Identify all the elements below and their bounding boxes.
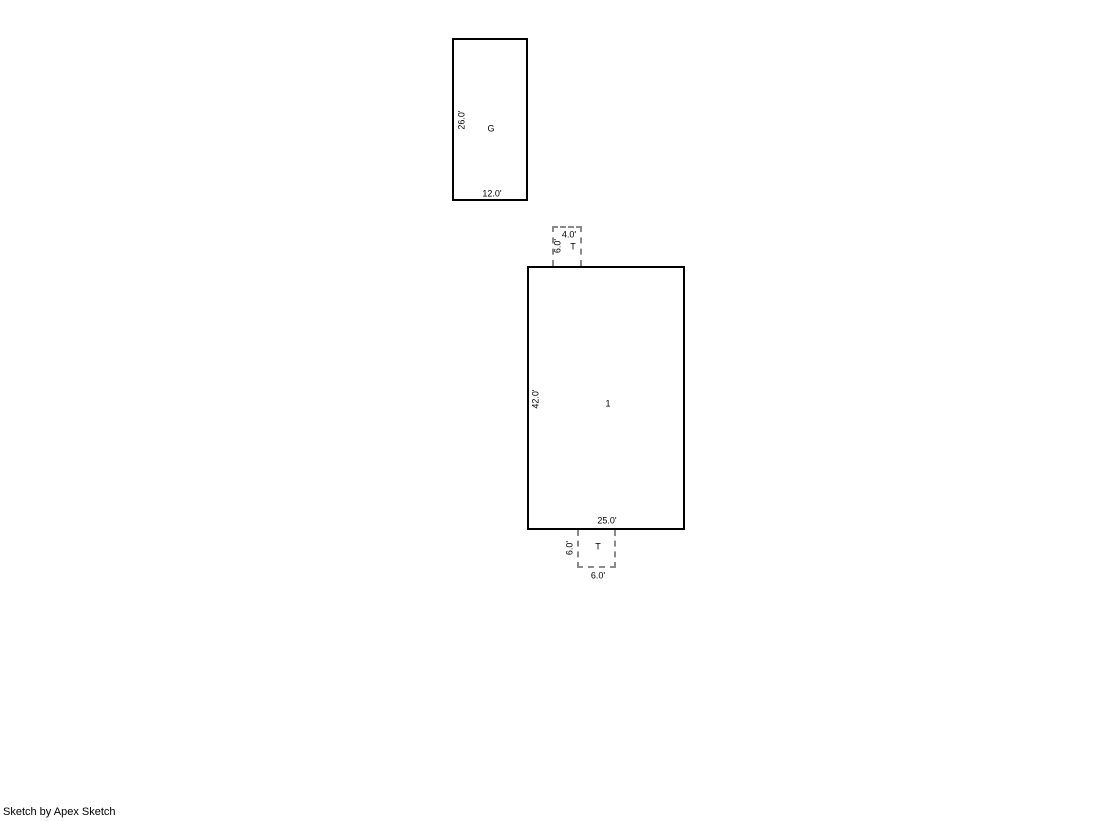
t-bottom-area-outline: 6.0' T 6.0': [577, 530, 616, 568]
t-top-area-outline: 4.0' 6.0' T: [552, 226, 582, 266]
t-bottom-bottom-dimension: 6.0': [591, 572, 605, 581]
t-top-top-dimension: 4.0': [562, 231, 576, 240]
main-area-label: 1: [605, 400, 610, 409]
garage-left-dimension: 26.0': [458, 110, 467, 129]
main-bottom-dimension: 25.0': [597, 517, 616, 526]
garage-area-outline: 26.0' G 12.0': [452, 38, 528, 201]
t-bottom-left-dimension: 6.0': [566, 541, 575, 555]
t-top-left-dimension: 6.0': [554, 239, 563, 253]
garage-area-label: G: [487, 125, 494, 134]
sketch-credit-text: Sketch by Apex Sketch: [3, 806, 116, 818]
t-bottom-area-label: T: [595, 543, 601, 552]
sketch-canvas: 26.0' G 12.0' 4.0' 6.0' T 42.0' 1 25.0' …: [0, 0, 1119, 821]
main-area-outline: 42.0' 1 25.0': [527, 266, 685, 530]
garage-bottom-dimension: 12.0': [482, 190, 501, 199]
t-top-area-label: T: [570, 243, 576, 252]
main-left-dimension: 42.0': [532, 389, 541, 408]
